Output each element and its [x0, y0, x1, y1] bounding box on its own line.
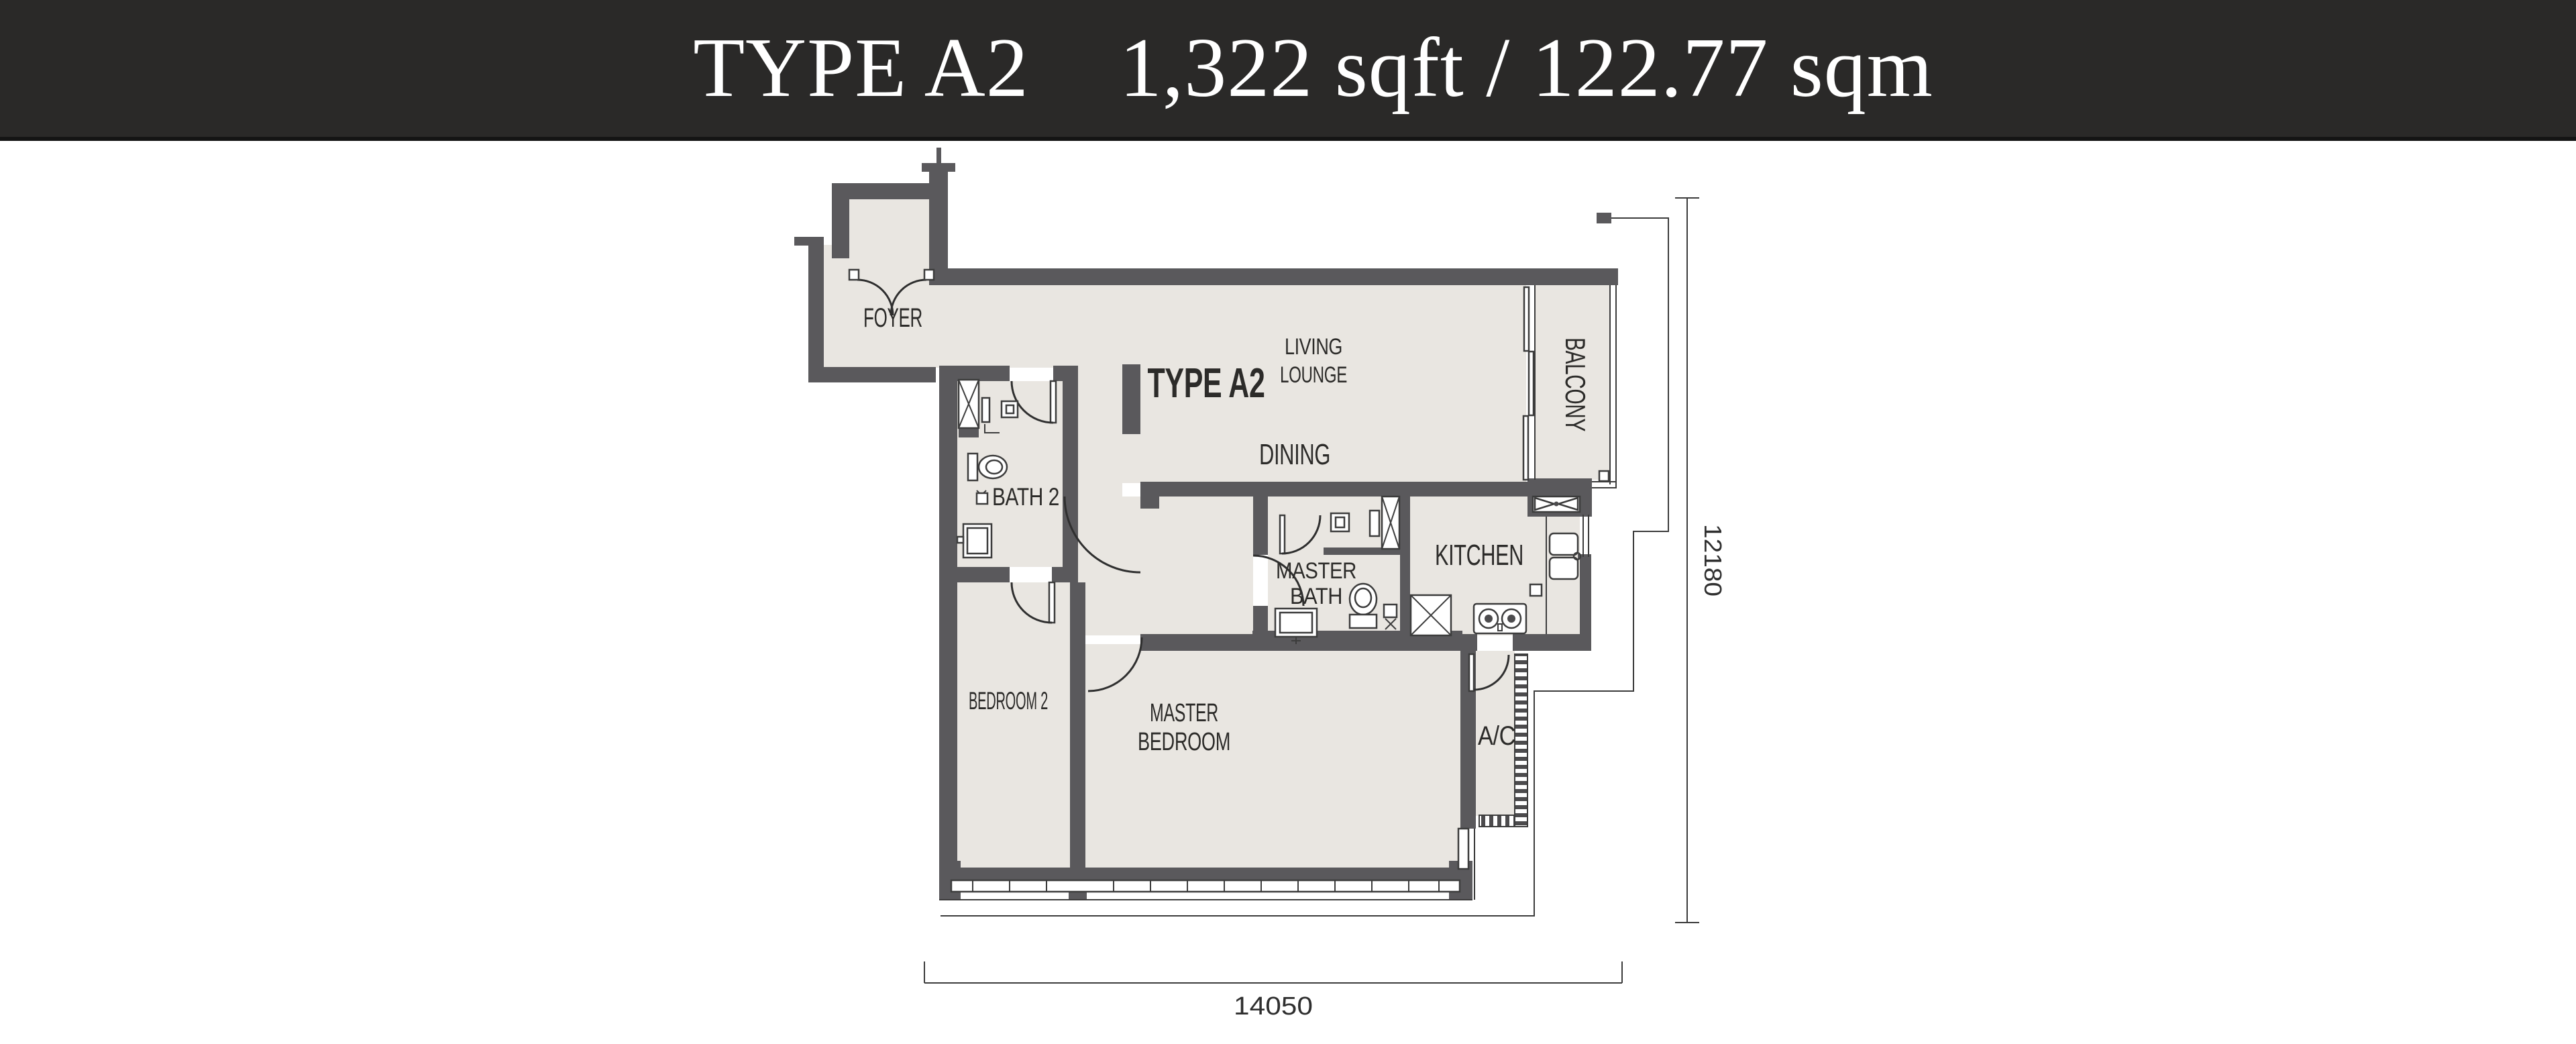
wall-kitchen-bottom-b — [1513, 634, 1590, 651]
wall-nook-top — [832, 183, 932, 199]
dimension-vertical-line — [1675, 198, 1699, 923]
window-balcony-corner-post — [1599, 471, 1609, 481]
wall-bedroom-divider — [1070, 582, 1085, 874]
stove-icon — [1474, 604, 1526, 633]
entry-door-jamb-right — [924, 270, 934, 280]
floor-hall — [929, 284, 1526, 368]
shower-drain-icon — [1331, 513, 1349, 531]
room-label-living-2: LOUNGE — [1280, 362, 1347, 388]
wall-mbath-west-a — [1253, 497, 1268, 555]
wall-dining-south — [1140, 482, 1529, 497]
dimension-vertical: 12180 — [1675, 198, 1727, 923]
room-label-bath2: BATH 2 — [992, 483, 1059, 511]
dimension-horizontal-value: 14050 — [1234, 992, 1313, 1021]
wall-chimney-tick — [936, 148, 941, 163]
room-label-living-1: LIVING — [1285, 334, 1342, 360]
entry-door-jamb-left — [849, 270, 859, 280]
room-label-master-bath-2: BATH — [1290, 584, 1342, 609]
master-toilet-tank-icon — [1350, 615, 1377, 628]
wall-chimney — [929, 171, 948, 285]
wall-dining-step — [1140, 482, 1159, 509]
master-drain-box-icon — [1384, 605, 1397, 617]
burner-left-center-icon — [1485, 615, 1493, 623]
wall-bath2-right — [1063, 381, 1078, 567]
bath2-door-leaf — [1051, 381, 1056, 423]
floor-master-bedroom — [1085, 644, 1460, 869]
master-bath-door-leaf — [1280, 515, 1285, 554]
room-label-foyer: FOYER — [863, 303, 922, 333]
shower-mixer-icon — [1370, 511, 1379, 536]
burner-right-center-icon — [1507, 615, 1515, 623]
wall-bath2-closet-cap — [959, 428, 979, 437]
wall-foyer-bottom — [808, 367, 936, 382]
wall-bath2-top-b — [1053, 366, 1078, 381]
wall-outer-left — [939, 366, 957, 876]
kitchen-drain-box-icon — [1530, 584, 1542, 596]
fan-coil-unit — [1533, 497, 1580, 512]
fan-hub-icon — [1554, 502, 1559, 507]
louver-strip-bottom-icon — [1479, 815, 1515, 827]
sliding-panel-3 — [1523, 416, 1528, 480]
faucet-icon — [957, 537, 963, 543]
bedroom2-door-leaf — [1049, 582, 1055, 623]
floor-corridor-n — [1078, 366, 1122, 500]
switch-box-icon — [1002, 401, 1018, 417]
sink-basin-top-icon — [1550, 533, 1578, 555]
room-label-dining: DINING — [1259, 438, 1330, 471]
sliding-panel-1 — [1524, 287, 1529, 351]
window-right-return — [1458, 829, 1468, 869]
dimension-horizontal-line — [924, 961, 1622, 983]
wall-balcony-top-stub — [1597, 213, 1611, 223]
wall-kitchen-west — [1400, 497, 1410, 651]
sliding-panel-2 — [1529, 352, 1534, 415]
louver-strip-right-icon — [1515, 654, 1527, 827]
room-label-master-bath-1: MASTER — [1276, 558, 1356, 584]
wall-kitchen-right — [1580, 557, 1591, 651]
wall-foyer-stub — [794, 237, 808, 246]
wall-top — [929, 268, 1618, 285]
room-label-master-bedroom-1: MASTER — [1150, 699, 1218, 727]
wall-balcony-south — [1527, 478, 1592, 497]
drain-box-icon — [977, 493, 987, 504]
window-bottom-band — [951, 880, 1460, 892]
wall-lobby-south — [1140, 634, 1252, 651]
room-label-kitchen: KITCHEN — [1435, 539, 1523, 572]
dimension-horizontal: 14050 — [924, 961, 1622, 1021]
wall-foyer-left — [808, 237, 824, 382]
room-label-ac: A/C — [1478, 721, 1515, 751]
floor-lobby — [1078, 497, 1253, 635]
heater-icon — [982, 398, 989, 422]
toilet-tank-icon — [968, 454, 977, 480]
floor-bedroom2 — [957, 582, 1070, 871]
wall-bath2-bottom-b — [1052, 567, 1078, 582]
window-kitchen — [1583, 515, 1589, 557]
room-label-bedroom2: BEDROOM 2 — [969, 687, 1048, 715]
wall-bath2-bottom-a — [957, 567, 1010, 582]
dimension-vertical-value: 12180 — [1699, 524, 1727, 596]
wall-bath2-top-a — [957, 366, 1010, 381]
wall-chimney-cap — [922, 163, 955, 172]
sink-basin-bottom-icon — [1550, 558, 1578, 579]
wall-fan-right — [1580, 495, 1592, 514]
room-label-balcony: BALCONY — [1560, 337, 1591, 431]
wall-bottom-band — [939, 868, 1472, 881]
room-label-master-bedroom-2: BEDROOM — [1138, 728, 1230, 756]
floor-plan: 12180 14050 FOYER TYPE A2 LIVING LOUNGE … — [0, 0, 2576, 1044]
unit-type-label: TYPE A2 — [1148, 360, 1265, 407]
wall-corridor — [1122, 364, 1140, 434]
ac-door-leaf — [1469, 654, 1474, 691]
